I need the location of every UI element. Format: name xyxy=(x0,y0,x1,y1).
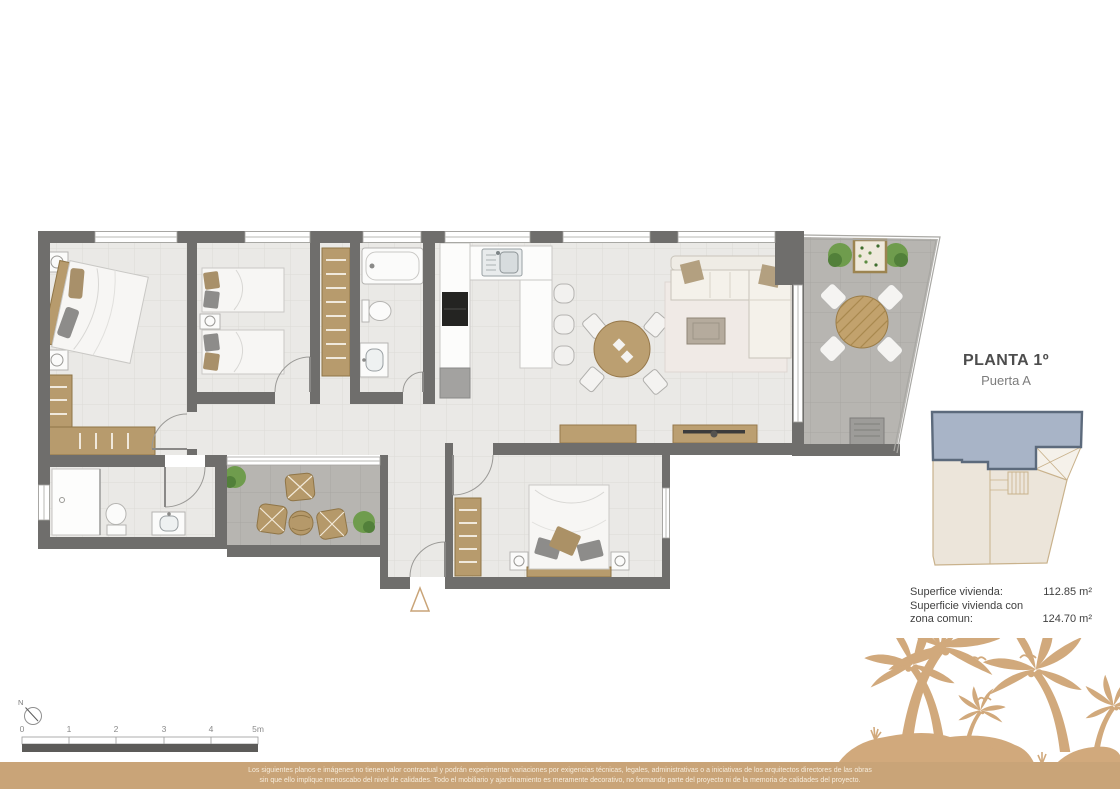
scale-label: 1 xyxy=(67,724,72,734)
disclaimer-text: sin que ello implique menoscabo del nive… xyxy=(0,776,1120,786)
area-label: Superfice vivienda: xyxy=(910,586,1003,600)
key-plan xyxy=(928,406,1092,572)
area-label: zona comun: xyxy=(910,613,973,627)
kitchen-island xyxy=(520,280,552,368)
kitchen-sink xyxy=(482,249,522,276)
double-bed xyxy=(42,259,148,364)
compass-north-label: N xyxy=(18,698,23,707)
area-value: 112.85 m² xyxy=(1043,586,1092,600)
page-subtitle: Puerta A xyxy=(920,373,1092,388)
scale-label: 2 xyxy=(114,724,119,734)
footer-disclaimer-bar: Los siguientes planos e imágenes no tien… xyxy=(0,762,1120,789)
double-bed xyxy=(527,485,611,577)
hall-wardrobe xyxy=(322,248,350,376)
scale-label: 4 xyxy=(209,724,214,734)
dining-table xyxy=(594,321,650,377)
disclaimer-text: Los siguientes planos e imágenes no tien… xyxy=(0,766,1120,776)
key-plan-building xyxy=(933,460,1067,565)
scale-bar: 0 1 2 3 4 5m xyxy=(20,724,264,752)
tv-unit xyxy=(673,425,757,443)
bar-stools xyxy=(554,284,574,365)
shower xyxy=(52,469,100,535)
planter-box xyxy=(854,240,886,272)
scale-and-compass: N 0 1 2 3 4 5m xyxy=(8,692,288,762)
page-title: PLANTA 1º xyxy=(920,352,1092,370)
entrance-marker xyxy=(411,588,429,611)
compass-icon: N xyxy=(18,698,42,725)
scale-label: 3 xyxy=(162,724,167,734)
area-label: Superficie vivienda con xyxy=(910,600,1023,614)
scale-label: 5m xyxy=(252,724,264,734)
palm-trees-illustration xyxy=(830,638,1120,768)
floor-plan xyxy=(30,222,950,612)
floor-plan-page: PLANTA 1º Puerta A Superfice vivienda: 1… xyxy=(0,0,1120,800)
scale-label: 0 xyxy=(20,724,25,734)
sideboard xyxy=(560,425,636,443)
area-value: 124.70 m² xyxy=(1042,613,1092,627)
pouf xyxy=(289,511,313,535)
wardrobe xyxy=(455,498,481,576)
title-block: PLANTA 1º Puerta A xyxy=(920,352,1092,388)
bedroom-3 xyxy=(455,485,629,577)
area-summary: Superfice vivienda: 112.85 m² Superficie… xyxy=(910,586,1092,627)
ac-unit xyxy=(850,418,884,448)
